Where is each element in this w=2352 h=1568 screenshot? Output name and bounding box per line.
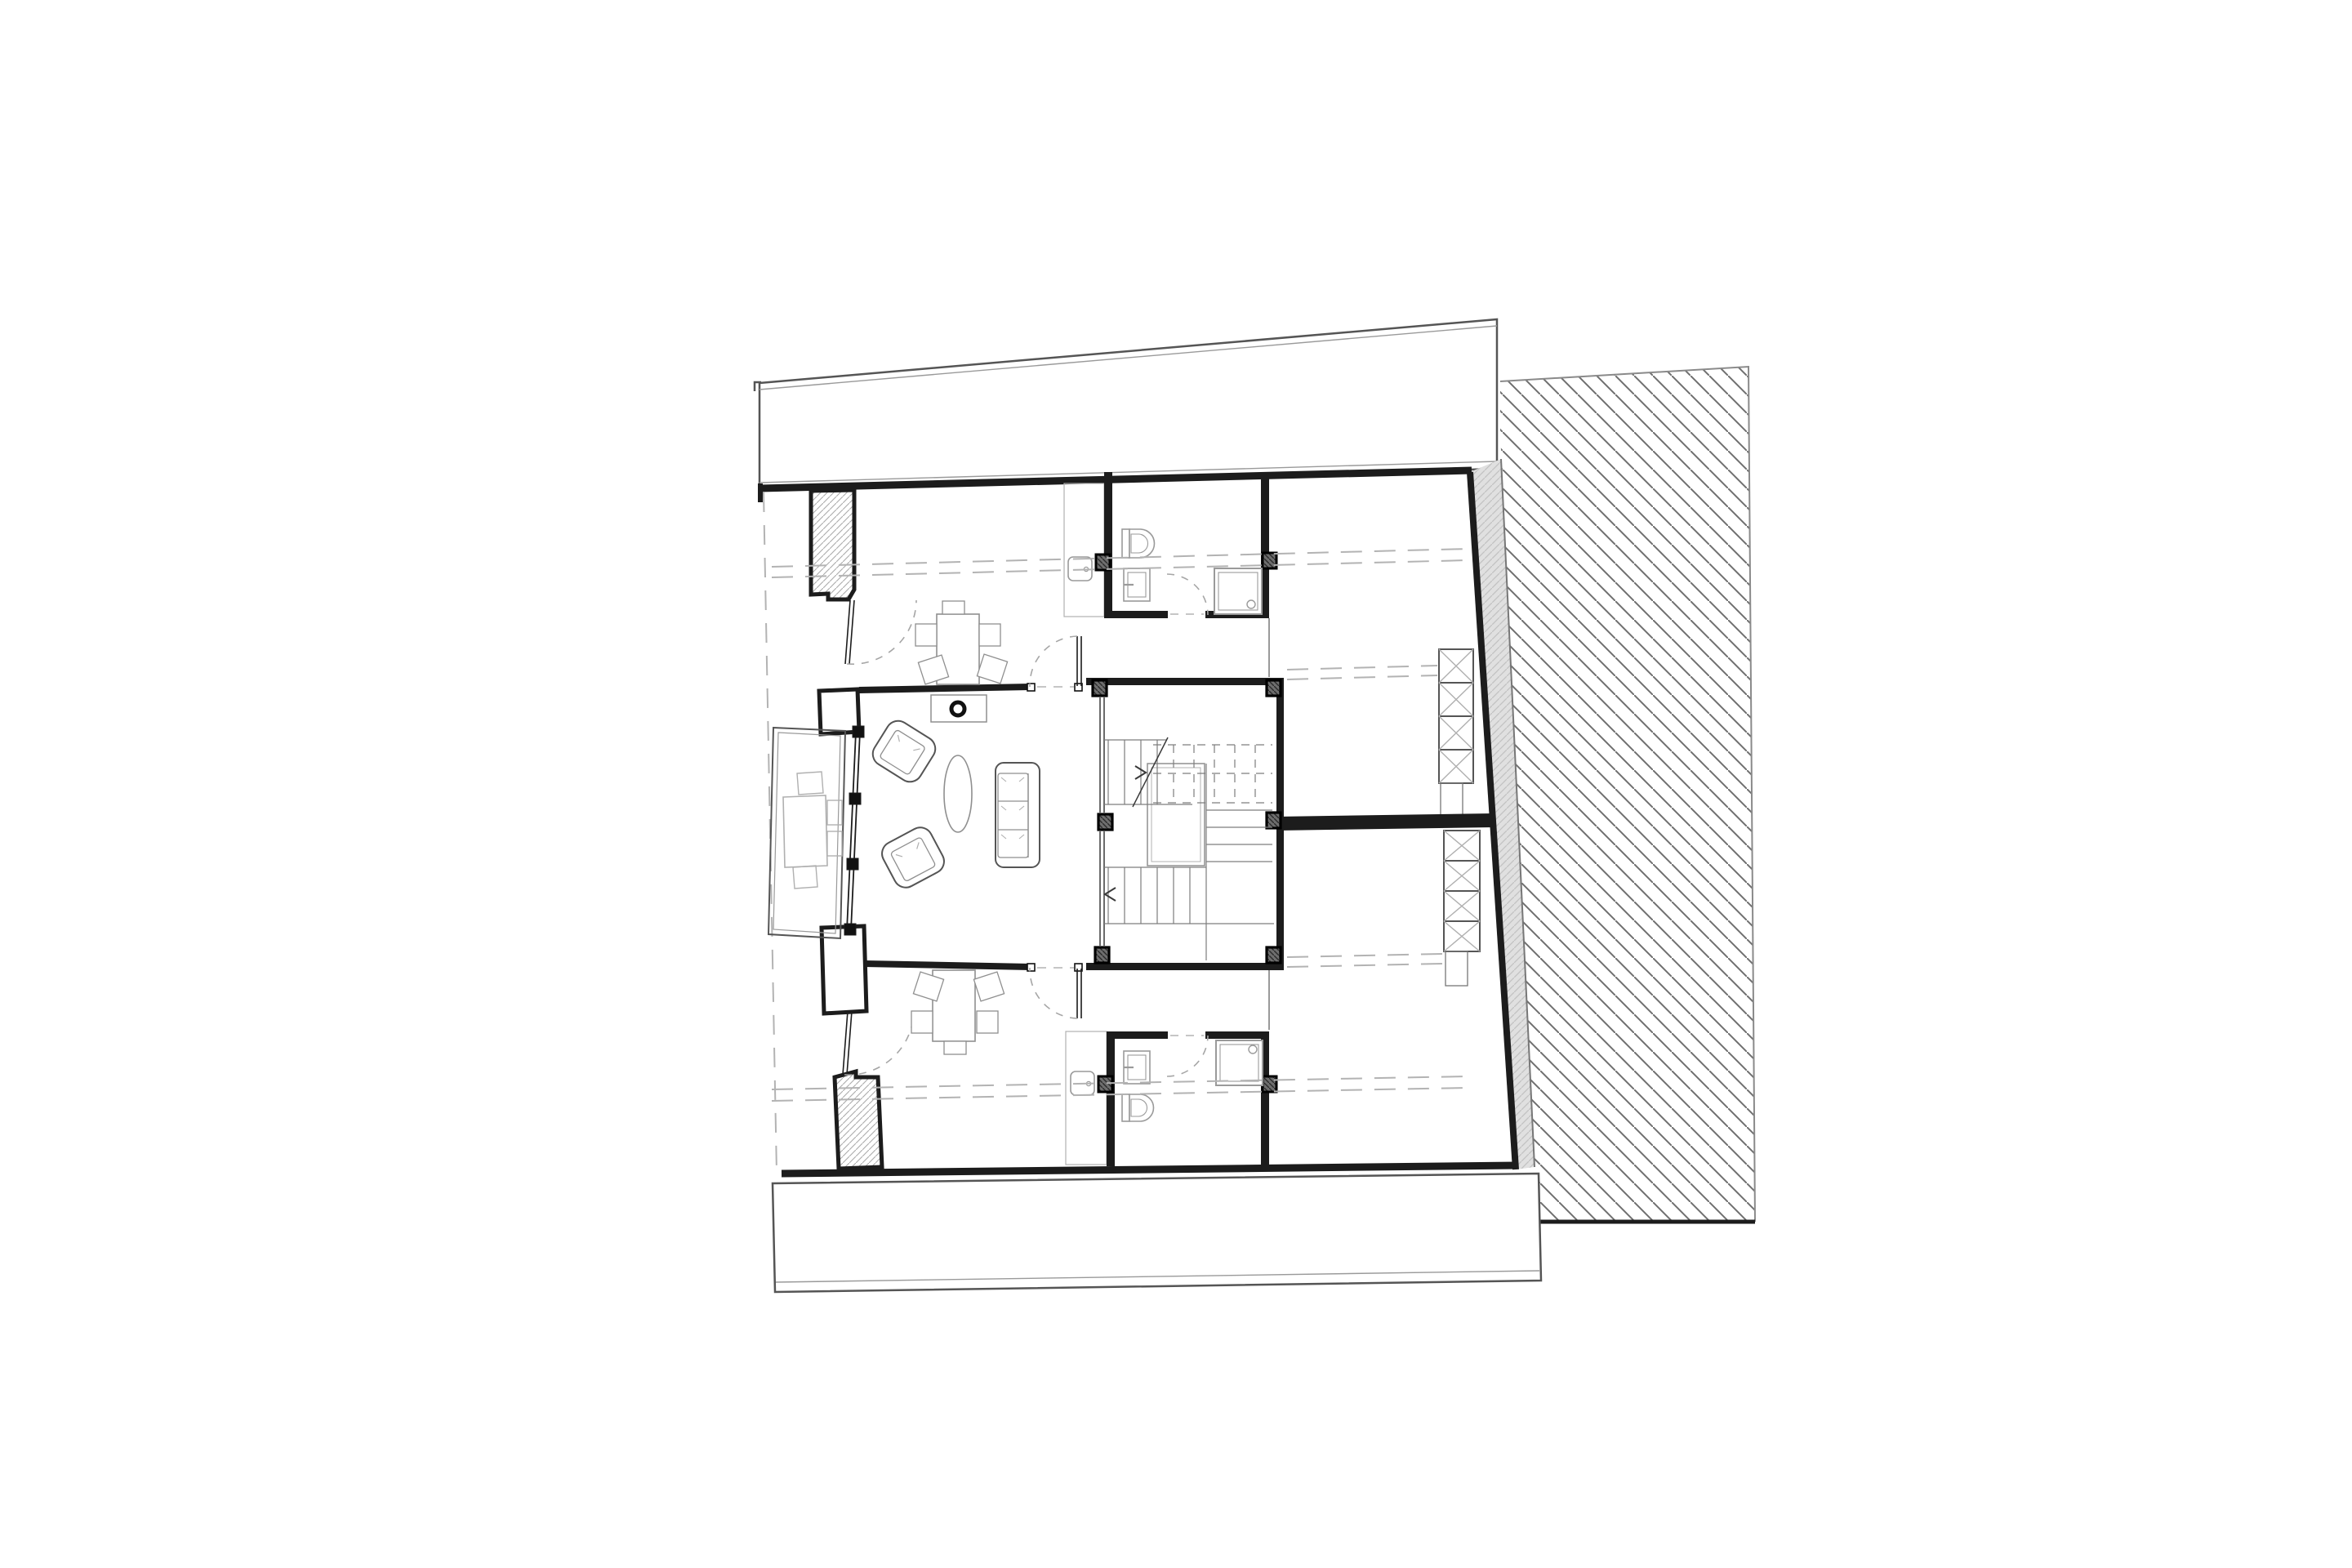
sofa-seat: [998, 773, 1028, 857]
stair-void-inner: [1151, 768, 1200, 862]
living-bottom-wall: [864, 964, 1031, 967]
chair-right: [977, 1011, 998, 1033]
neighbor-hatch-area: [1500, 367, 1755, 1222]
sideboard-with-stove: [931, 695, 987, 722]
roof-band-bottom-plane: [773, 1174, 1541, 1292]
masonry-pier-top: [811, 490, 854, 599]
mullion-post-4: [844, 924, 856, 935]
toilet-tank: [1122, 1094, 1129, 1121]
structural-column: [1095, 947, 1109, 963]
stair-void: [1147, 764, 1205, 866]
structural-column: [1267, 813, 1281, 828]
chair-right: [979, 624, 1000, 646]
structural-column: [1267, 680, 1281, 696]
shower-bottom: [1216, 1040, 1263, 1085]
core-wall-bottom: [1086, 963, 1284, 970]
washbasin-bottom: [1124, 1051, 1150, 1084]
shower-top: [1214, 568, 1262, 614]
door-jamb: [1027, 684, 1035, 691]
toilet-bowl: [1129, 1094, 1154, 1121]
wall-pier-lower-white: [822, 926, 866, 1013]
chair-top: [942, 601, 964, 614]
washbasin-top: [1124, 568, 1150, 601]
shower-drain: [1247, 600, 1255, 608]
bathroom-wall-bottom-left: [1104, 611, 1168, 618]
bathroom-wall-top-right: [1205, 1031, 1269, 1039]
structural-column: [1098, 1076, 1112, 1092]
neighbor-building: [1500, 367, 1755, 1222]
structural-column: [1263, 553, 1276, 568]
bathroom-wall-top-left: [1107, 1031, 1168, 1039]
toilet-bottom: [1122, 1094, 1154, 1121]
bathroom-wall-left: [1104, 472, 1112, 618]
chair-left: [915, 624, 937, 646]
core-wall-top: [1086, 678, 1284, 685]
chair-bottom: [944, 1041, 966, 1054]
masonry-pier-bottom: [835, 1071, 882, 1169]
toilet-tank: [1122, 529, 1129, 558]
shower-drain: [1249, 1045, 1257, 1053]
floor-plan-canvas: [0, 0, 2352, 1568]
stove-ring: [951, 702, 964, 715]
structural-column: [1093, 680, 1107, 696]
bathroom-wall-left: [1107, 1031, 1115, 1166]
mullion-post-2: [849, 793, 861, 804]
mullion-post-1: [853, 726, 864, 737]
structural-column: [1267, 947, 1281, 963]
door-jamb: [1027, 964, 1035, 971]
structural-column: [1263, 1076, 1276, 1092]
toilet-bowl: [1129, 529, 1155, 558]
mullion-post-3: [847, 858, 858, 870]
structural-column: [1096, 555, 1110, 570]
coffee-table-oval: [944, 755, 972, 832]
balcony-table: [783, 795, 827, 867]
living-top-wall: [859, 687, 1031, 690]
sofa: [996, 763, 1040, 867]
chair-left: [911, 1011, 933, 1033]
structural-column: [1098, 814, 1112, 830]
toilet-top: [1122, 529, 1155, 558]
roof-band-bottom: [773, 1174, 1541, 1292]
